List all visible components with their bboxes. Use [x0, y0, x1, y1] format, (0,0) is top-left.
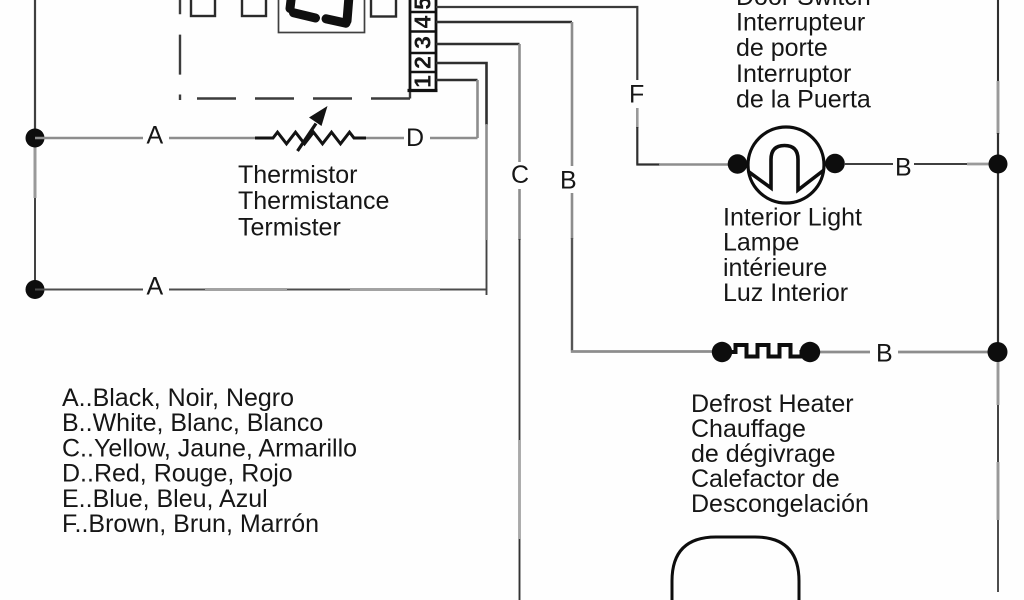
svg-text:A: A [147, 273, 164, 301]
svg-text:ThermistorThermistanceTermiste: ThermistorThermistanceTermister [238, 161, 389, 241]
svg-text:A: A [147, 122, 164, 150]
svg-text:A..Black, Noir, NegroB..White,: A..Black, Noir, NegroB..White, Blanc, Bl… [62, 384, 357, 538]
svg-text:F: F [629, 81, 644, 109]
svg-text:B: B [876, 340, 893, 368]
svg-text:C: C [511, 161, 529, 189]
svg-text:5: 5 [410, 0, 436, 10]
svg-text:B: B [560, 167, 577, 195]
svg-text:D: D [406, 124, 424, 152]
svg-text:Door SwitchInterrupteurde port: Door SwitchInterrupteurde porteInterrupt… [736, 0, 871, 113]
svg-text:2: 2 [410, 56, 436, 69]
svg-text:3: 3 [410, 36, 436, 49]
svg-text:4: 4 [410, 15, 436, 28]
svg-text:Interior LightLampeintérieureL: Interior LightLampeintérieureLuz Interio… [723, 204, 862, 308]
svg-text:B: B [895, 154, 912, 182]
svg-text:1: 1 [410, 75, 436, 88]
svg-text:Defrost HeaterChauffagede dégi: Defrost HeaterChauffagede dégivrageCalef… [691, 390, 869, 518]
